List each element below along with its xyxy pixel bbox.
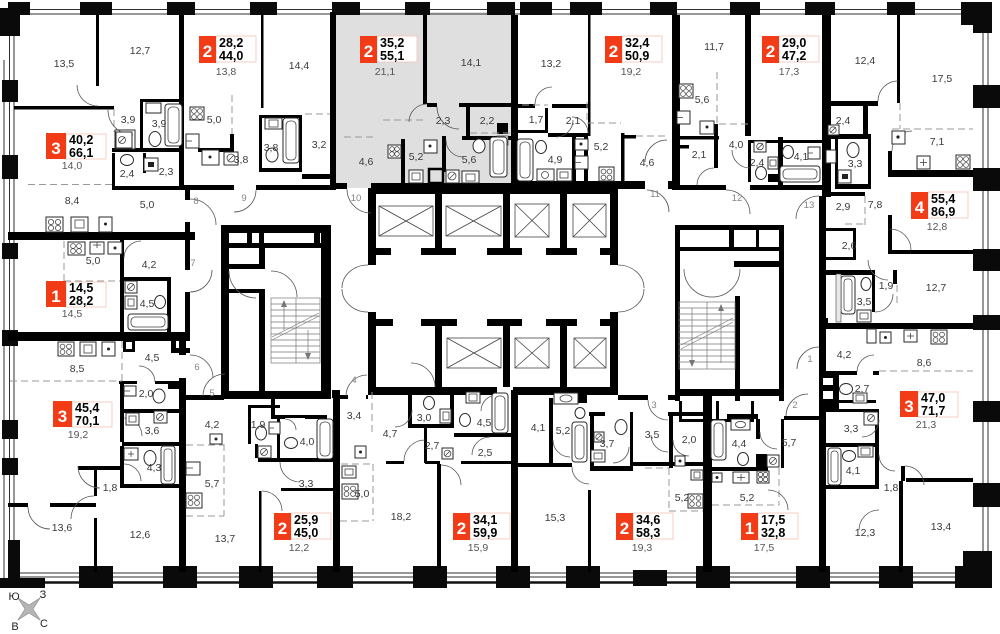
svg-text:5,6: 5,6 — [695, 94, 710, 106]
svg-text:2: 2 — [792, 400, 797, 411]
svg-text:12,2: 12,2 — [289, 542, 310, 554]
svg-text:3,6: 3,6 — [145, 425, 160, 437]
svg-text:5,0: 5,0 — [140, 199, 155, 211]
svg-text:28,2: 28,2 — [219, 36, 243, 50]
svg-text:17,3: 17,3 — [779, 66, 800, 78]
svg-text:4,5: 4,5 — [145, 352, 160, 364]
svg-text:14,5: 14,5 — [62, 308, 83, 320]
svg-text:12: 12 — [732, 193, 743, 204]
svg-text:4,5: 4,5 — [140, 298, 155, 310]
svg-text:3,5: 3,5 — [645, 429, 660, 441]
svg-text:19,2: 19,2 — [621, 66, 642, 78]
svg-text:В: В — [11, 621, 18, 633]
svg-text:3: 3 — [651, 400, 656, 411]
svg-text:5,2: 5,2 — [556, 425, 571, 437]
svg-text:2,3: 2,3 — [159, 166, 174, 178]
svg-text:2: 2 — [766, 42, 775, 61]
svg-text:5,0: 5,0 — [207, 114, 222, 126]
svg-text:4,2: 4,2 — [142, 259, 157, 271]
svg-text:19,3: 19,3 — [632, 542, 653, 554]
svg-text:7,8: 7,8 — [868, 199, 883, 211]
svg-text:11: 11 — [650, 189, 660, 200]
svg-text:5,7: 5,7 — [205, 478, 220, 490]
svg-text:13,4: 13,4 — [931, 521, 952, 533]
svg-text:2,4: 2,4 — [750, 157, 765, 169]
svg-text:13: 13 — [804, 200, 815, 211]
svg-text:3,9: 3,9 — [121, 114, 136, 126]
svg-text:2,5: 2,5 — [478, 447, 493, 459]
svg-text:4,2: 4,2 — [205, 419, 220, 431]
svg-text:1,7: 1,7 — [529, 114, 544, 126]
svg-text:55,4: 55,4 — [931, 192, 955, 206]
svg-text:2: 2 — [203, 42, 212, 61]
svg-text:2,1: 2,1 — [692, 149, 707, 161]
svg-text:11,7: 11,7 — [704, 41, 724, 53]
svg-text:25,9: 25,9 — [294, 513, 318, 527]
svg-text:28,2: 28,2 — [69, 294, 93, 308]
svg-text:15,3: 15,3 — [545, 512, 566, 524]
svg-text:4: 4 — [351, 375, 356, 386]
svg-text:7,1: 7,1 — [930, 136, 945, 148]
svg-text:2,0: 2,0 — [682, 434, 697, 446]
svg-text:2,2: 2,2 — [480, 115, 495, 127]
svg-text:13,8: 13,8 — [216, 66, 237, 78]
svg-text:2,6: 2,6 — [842, 240, 857, 252]
svg-text:14,1: 14,1 — [461, 57, 482, 69]
svg-text:2,4: 2,4 — [836, 115, 851, 127]
svg-text:12,8: 12,8 — [927, 221, 948, 233]
svg-text:4,6: 4,6 — [640, 157, 655, 169]
svg-text:17,5: 17,5 — [761, 513, 785, 527]
svg-text:3,5: 3,5 — [857, 296, 872, 308]
svg-text:45,4: 45,4 — [75, 401, 99, 415]
svg-text:3,2: 3,2 — [312, 139, 327, 151]
svg-text:2,1: 2,1 — [566, 115, 581, 127]
svg-text:86,9: 86,9 — [931, 205, 955, 219]
svg-text:4,0: 4,0 — [729, 139, 744, 151]
svg-text:45,0: 45,0 — [294, 526, 318, 540]
svg-text:12,3: 12,3 — [855, 527, 876, 539]
svg-text:8: 8 — [193, 196, 198, 207]
svg-text:32,8: 32,8 — [761, 526, 785, 540]
svg-text:19,2: 19,2 — [68, 429, 89, 441]
svg-text:3: 3 — [51, 139, 60, 158]
svg-text:2: 2 — [620, 519, 629, 538]
svg-text:3,3: 3,3 — [848, 158, 863, 170]
svg-text:3,4: 3,4 — [347, 410, 362, 422]
svg-text:5,2: 5,2 — [675, 492, 690, 504]
svg-text:5,2: 5,2 — [740, 492, 755, 504]
svg-text:14,5: 14,5 — [69, 281, 93, 295]
svg-text:4,0: 4,0 — [300, 436, 315, 448]
svg-text:47,2: 47,2 — [782, 49, 806, 63]
svg-text:18,2: 18,2 — [391, 511, 412, 523]
svg-text:32,4: 32,4 — [625, 36, 649, 50]
svg-text:50,9: 50,9 — [625, 49, 649, 63]
svg-text:1,9: 1,9 — [251, 419, 266, 431]
svg-text:55,1: 55,1 — [380, 49, 404, 63]
svg-text:2,0: 2,0 — [139, 388, 154, 400]
svg-text:З: З — [40, 589, 47, 601]
svg-text:4,1: 4,1 — [794, 151, 809, 163]
svg-text:2: 2 — [278, 519, 287, 538]
svg-text:1: 1 — [745, 519, 754, 538]
svg-text:4,1: 4,1 — [531, 422, 546, 434]
svg-text:13,2: 13,2 — [541, 58, 562, 70]
svg-text:17,5: 17,5 — [932, 73, 953, 85]
svg-text:12,4: 12,4 — [855, 55, 876, 67]
svg-text:6: 6 — [194, 362, 199, 373]
svg-text:4,9: 4,9 — [548, 154, 563, 166]
svg-text:35,2: 35,2 — [380, 36, 404, 50]
svg-text:3: 3 — [58, 407, 67, 426]
svg-text:21,1: 21,1 — [375, 66, 396, 78]
svg-text:2: 2 — [457, 519, 466, 538]
svg-text:2: 2 — [364, 42, 373, 61]
svg-text:5: 5 — [209, 388, 214, 399]
svg-text:4,4: 4,4 — [732, 438, 747, 450]
svg-text:17,5: 17,5 — [754, 542, 775, 554]
svg-text:3,3: 3,3 — [844, 423, 859, 435]
svg-text:1,9: 1,9 — [879, 280, 894, 292]
svg-text:5,2: 5,2 — [594, 141, 609, 153]
svg-text:44,0: 44,0 — [219, 49, 243, 63]
svg-text:40,2: 40,2 — [69, 133, 93, 147]
svg-text:5,0: 5,0 — [86, 255, 101, 267]
svg-text:14,0: 14,0 — [62, 160, 83, 172]
svg-text:8,4: 8,4 — [65, 195, 80, 207]
svg-text:Ю: Ю — [8, 591, 19, 603]
svg-text:3,7: 3,7 — [600, 438, 615, 450]
svg-text:34,1: 34,1 — [473, 513, 497, 527]
svg-text:1,8: 1,8 — [103, 482, 118, 494]
svg-text:4,2: 4,2 — [837, 349, 852, 361]
svg-text:14,4: 14,4 — [289, 60, 310, 72]
svg-text:4,1: 4,1 — [846, 465, 861, 477]
svg-text:4,7: 4,7 — [383, 428, 398, 440]
svg-text:66,1: 66,1 — [69, 146, 93, 160]
svg-text:10: 10 — [351, 193, 362, 204]
svg-text:2,7: 2,7 — [425, 440, 440, 452]
svg-text:4,3: 4,3 — [147, 462, 162, 474]
svg-text:5,0: 5,0 — [355, 488, 370, 500]
svg-text:2,3: 2,3 — [436, 115, 451, 127]
svg-text:1: 1 — [51, 287, 60, 306]
svg-text:8,5: 8,5 — [70, 363, 85, 375]
svg-text:5,2: 5,2 — [409, 151, 424, 163]
svg-text:21,3: 21,3 — [916, 419, 937, 431]
svg-text:13,7: 13,7 — [215, 533, 236, 545]
svg-text:2,4: 2,4 — [120, 168, 135, 180]
svg-text:3: 3 — [904, 397, 913, 416]
svg-text:12,6: 12,6 — [130, 529, 151, 541]
svg-text:13,5: 13,5 — [54, 58, 75, 70]
svg-text:3,9: 3,9 — [152, 118, 167, 130]
svg-text:5,7: 5,7 — [782, 437, 797, 449]
svg-text:47,0: 47,0 — [921, 391, 945, 405]
svg-text:8,6: 8,6 — [917, 357, 932, 369]
svg-text:34,6: 34,6 — [636, 513, 660, 527]
svg-text:3,3: 3,3 — [299, 478, 314, 490]
svg-text:2,7: 2,7 — [855, 383, 870, 395]
svg-text:С: С — [40, 618, 48, 630]
svg-text:59,9: 59,9 — [473, 526, 497, 540]
svg-text:7: 7 — [190, 258, 195, 269]
svg-text:4,6: 4,6 — [359, 156, 374, 168]
svg-text:29,0: 29,0 — [782, 36, 806, 50]
svg-text:71,7: 71,7 — [921, 404, 945, 418]
svg-text:15,9: 15,9 — [468, 542, 489, 554]
svg-text:3,0: 3,0 — [417, 412, 432, 424]
svg-text:3,8: 3,8 — [234, 154, 249, 166]
svg-text:2,9: 2,9 — [836, 201, 851, 213]
svg-text:9: 9 — [241, 193, 246, 204]
svg-text:3,8: 3,8 — [264, 142, 279, 154]
svg-text:4: 4 — [915, 198, 925, 217]
svg-text:12,7: 12,7 — [130, 45, 151, 57]
svg-text:1: 1 — [807, 354, 812, 365]
svg-text:5,6: 5,6 — [462, 154, 477, 166]
svg-text:4,5: 4,5 — [477, 417, 492, 429]
svg-text:12,7: 12,7 — [926, 282, 947, 294]
svg-text:70,1: 70,1 — [75, 414, 99, 428]
svg-text:2: 2 — [609, 42, 618, 61]
svg-text:1,8: 1,8 — [884, 482, 899, 494]
svg-text:13,6: 13,6 — [52, 522, 73, 534]
svg-text:58,3: 58,3 — [636, 526, 660, 540]
